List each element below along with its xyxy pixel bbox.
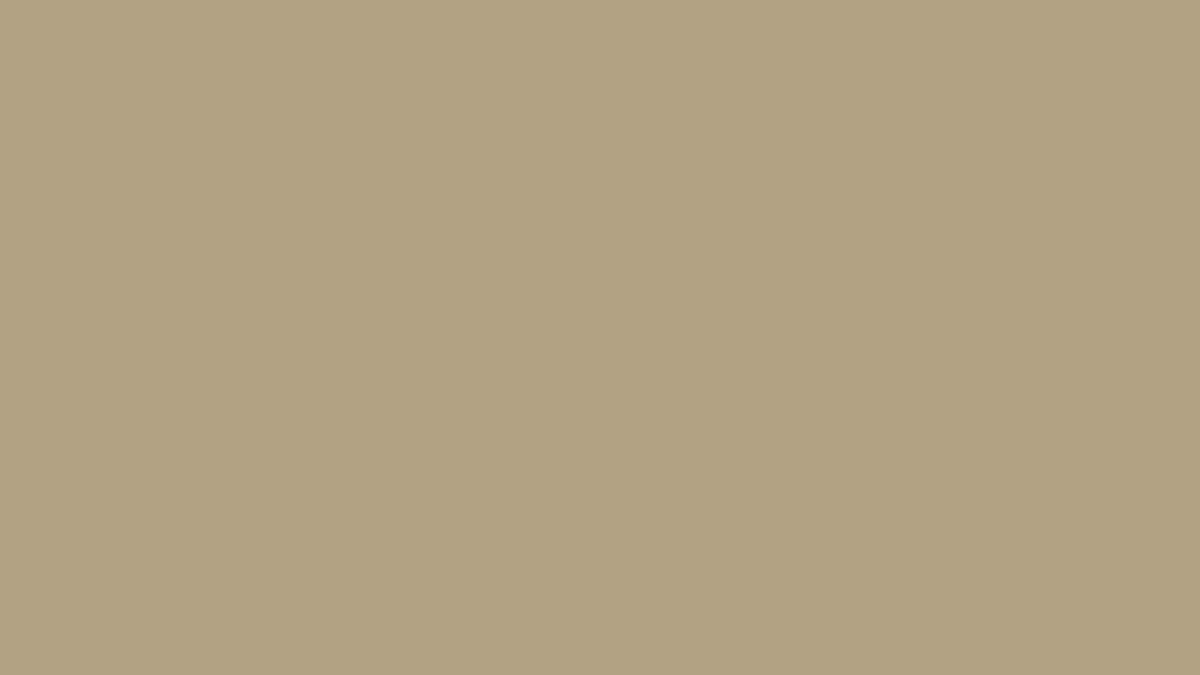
aerial-masterplan-render [0,0,1200,675]
masterplan-scene [0,0,1200,675]
